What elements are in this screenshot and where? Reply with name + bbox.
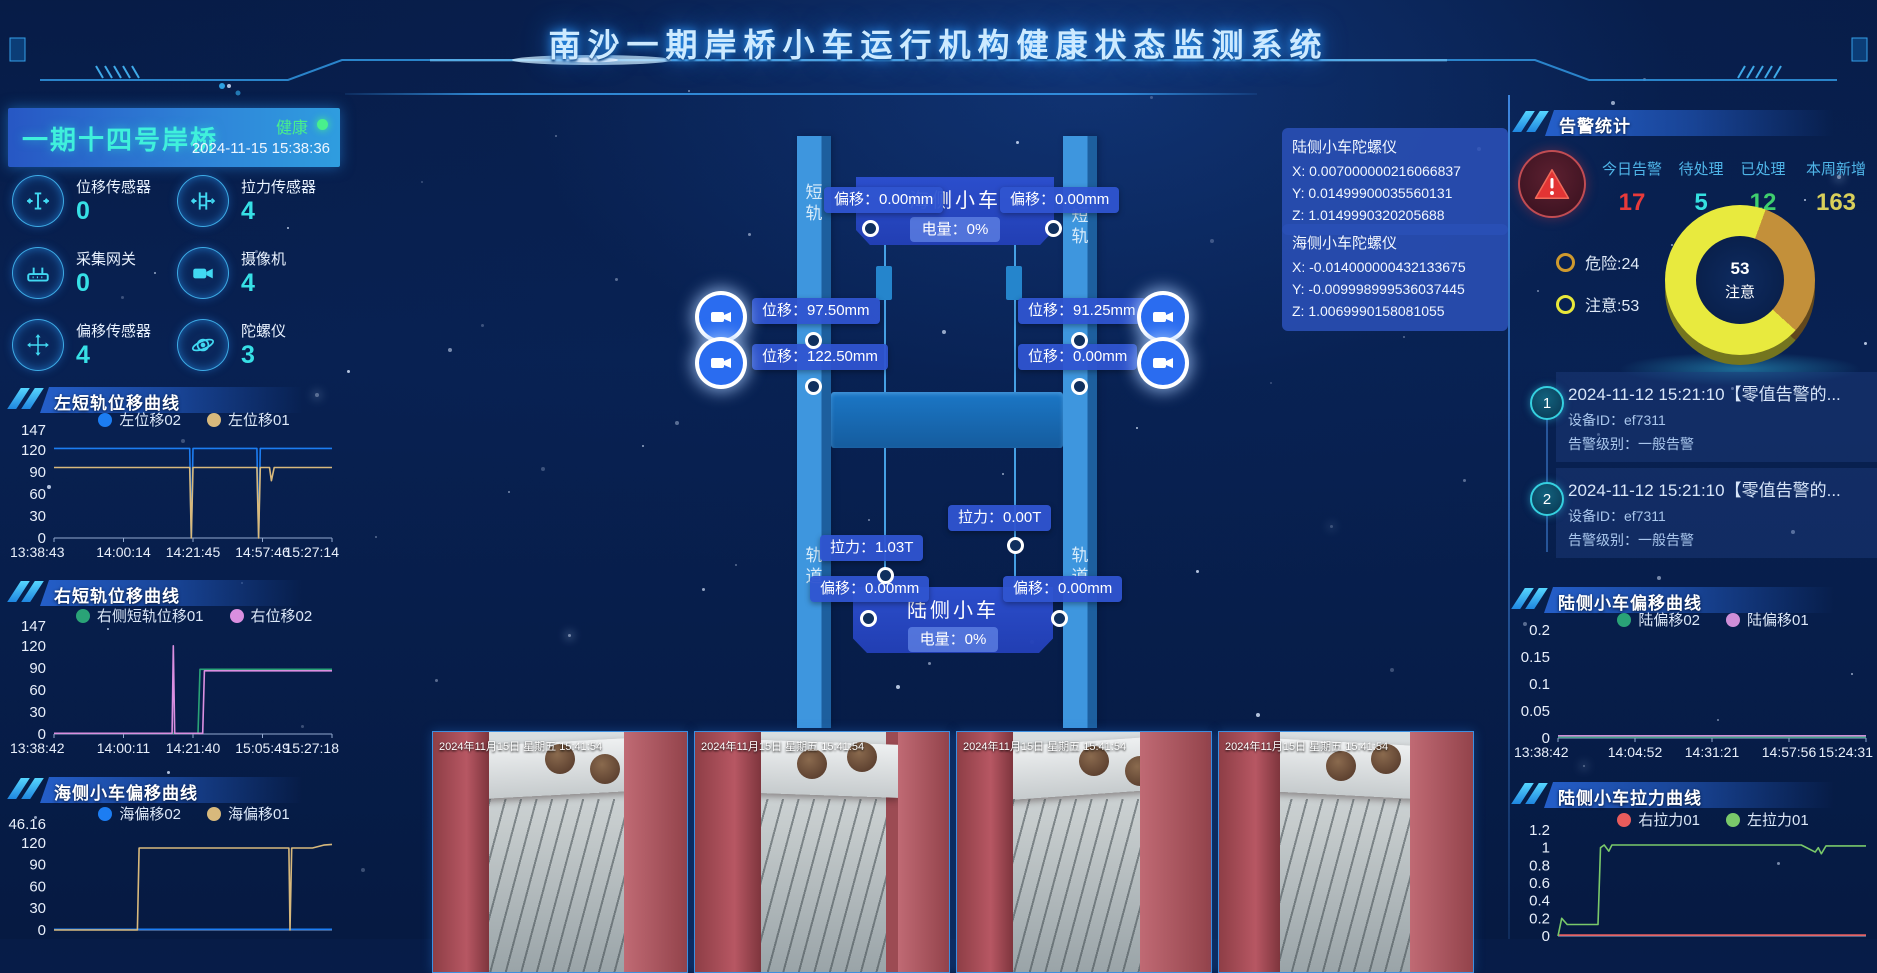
sensor-value: 4 [76,341,151,370]
legend-item[interactable]: 右侧短轨位移01 [76,605,204,626]
svg-text:13:38:42: 13:38:42 [10,740,65,756]
svg-text:0: 0 [1542,928,1550,944]
sensor-offset: 偏移传感器 4 [12,319,177,371]
chart-land-trolley-tension: 1.210.80.60.40.20右拉力01左拉力01 [1512,812,1874,944]
sea-trolley-gyro-panel: 海侧小车陀螺仪 X: -0.014000000432133675 Y: -0.0… [1282,224,1508,331]
section-title: 告警统计 [1559,112,1631,137]
svg-text:0.2: 0.2 [1529,622,1550,639]
alarm-list-item[interactable]: 2024-11-12 15:21:10【零值告警的... 设备ID：ef7311… [1556,468,1877,558]
svg-text:30: 30 [29,508,46,525]
svg-text:14:00:14: 14:00:14 [96,544,151,560]
sensor-tension: 拉力传感器 4 [177,175,342,227]
svg-text:120: 120 [21,638,46,655]
svg-text:14:00:11: 14:00:11 [97,740,151,756]
svg-text:0.6: 0.6 [1529,875,1550,892]
displacement-left-upper-tag: 位移：97.50mm [752,298,880,324]
sensor-label: 偏移传感器 [76,320,151,341]
chart-legend: 右拉力01左拉力01 [1552,809,1874,830]
tension-right-tag: 拉力：0.00T [948,505,1051,531]
danger-legend-dot [1556,253,1575,272]
svg-text:90: 90 [29,857,46,874]
section-alarm-stats: 告警统计 [1513,108,1873,138]
gyro-title: 陆侧小车陀螺仪 [1292,136,1498,159]
legend-item[interactable]: 左位移02 [98,409,181,430]
status-dot [317,119,328,130]
land-offset-left-marker [860,610,877,627]
chart-legend: 左位移02左位移01 [48,409,340,430]
alarm-level: 告警级别：一般告警 [1568,434,1694,454]
sensor-displacement: 位移传感器 0 [12,175,177,227]
alarm-timeline [1546,400,1548,552]
feed-timestamp: 2024年11月15日 星期五 15:41:54 [963,738,1126,754]
svg-text:13:38:42: 13:38:42 [1514,744,1569,760]
svg-text:60: 60 [29,878,46,895]
chart-legend: 右侧短轨位移01右位移02 [48,605,340,626]
tension-right-marker [1007,537,1024,554]
section-sea-trolley-offset: 海侧小车偏移曲线 [8,775,338,805]
crane-name: 一期十四号岸桥 [22,120,218,157]
gyro-z: Z: 1.0069990158081055 [1292,301,1498,323]
legend-item[interactable]: 右位移02 [230,605,313,626]
svg-text:14:57:56: 14:57:56 [1762,744,1817,760]
alarm-list-item[interactable]: 2024-11-12 15:21:10【零值告警的... 设备ID：ef7311… [1556,372,1877,462]
svg-text:0.15: 0.15 [1521,649,1550,666]
svg-text:30: 30 [29,900,46,917]
sensor-value: 3 [241,341,286,370]
sensor-camera: 摄像机 4 [177,247,342,299]
svg-text:0.2: 0.2 [1529,910,1550,927]
right-damper [1006,266,1022,300]
svg-text:0.8: 0.8 [1529,857,1550,874]
pie-center-value: 53 [1731,259,1750,279]
gyro-title: 海侧小车陀螺仪 [1292,232,1498,255]
sensor-gateway: 采集网关 0 [12,247,177,299]
alarm-title: 2024-11-12 15:21:10【零值告警的... [1568,380,1841,405]
svg-text:0: 0 [38,922,46,938]
sensor-value: 0 [76,269,136,298]
crane-info-card: 一期十四号岸桥 健康 2024-11-15 15:38:36 [8,108,340,167]
sensor-label: 位移传感器 [76,176,151,197]
svg-text:120: 120 [21,442,46,459]
svg-text:15:24:31: 15:24:31 [1819,744,1874,760]
land-trolley-gyro-panel: 陆侧小车陀螺仪 X: 0.007000000216066837 Y: 0.014… [1282,128,1508,235]
sea-offset-right-marker [1045,220,1062,237]
svg-text:30: 30 [29,704,46,721]
alarm-number-2: 2 [1530,482,1564,516]
legend-item[interactable]: 右拉力01 [1617,809,1700,830]
svg-text:147: 147 [21,422,46,439]
pie-legend-attention[interactable]: 注意:53 [1556,292,1639,316]
displacement-marker [1071,378,1088,395]
svg-text:15:27:18: 15:27:18 [285,740,340,756]
displacement-left-lower-tag: 位移：122.50mm [752,344,888,370]
feed-timestamp: 2024年11月15日 星期五 15:41:54 [701,738,864,754]
chart-right-short-rail-displacement: 147120906030013:38:4214:00:1114:21:4015:… [8,608,340,758]
svg-text:60: 60 [29,682,46,699]
sensor-summary-grid: 位移传感器 0 拉力传感器 4 采集网关 0 摄像机 4 [12,175,342,371]
svg-text:0.4: 0.4 [1529,893,1550,910]
svg-text:146.16: 146.16 [8,816,46,833]
tension-left-marker [877,567,894,584]
camera-feed-2[interactable]: 2024年11月15日 星期五 15:41:54 [694,731,950,973]
gyro-y: Y: -0.009998999536037445 [1292,279,1498,301]
svg-text:14:04:52: 14:04:52 [1608,744,1663,760]
sensor-label: 拉力传感器 [241,176,316,197]
sea-offset-right-tag: 偏移：0.00mm [1000,187,1119,213]
svg-text:1.2: 1.2 [1529,822,1550,839]
svg-text:13:38:43: 13:38:43 [10,544,65,560]
svg-text:14:21:40: 14:21:40 [166,740,221,756]
legend-item[interactable]: 陆偏移02 [1617,609,1700,630]
camera-icon[interactable] [1141,295,1185,339]
camera-feed-4[interactable]: 2024年11月15日 星期五 15:41:54 [1218,731,1474,973]
gyro-y: Y: 0.01499900035560131 [1292,183,1498,205]
alarm-device: 设备ID：ef7311 [1568,410,1666,430]
section-right-short-rail: 右短轨位移曲线 [8,578,338,608]
land-offset-left-tag: 偏移：0.00mm [810,576,929,602]
svg-text:1: 1 [1542,840,1550,857]
chart-left-short-rail-displacement: 147120906030013:38:4314:00:1414:21:4514:… [8,412,340,562]
camera-icon[interactable] [1141,341,1185,385]
displacement-marker [805,332,822,349]
left-damper [876,266,892,300]
pie-center-label: 注意 [1725,281,1755,302]
camera-icon[interactable] [699,295,743,339]
legend-item[interactable]: 左位移01 [207,409,290,430]
sensor-label: 摄像机 [241,248,286,269]
pie-center: 53 注意 [1696,236,1784,324]
displacement-marker [805,378,822,395]
section-title: 陆侧小车拉力曲线 [1558,784,1702,809]
alarm-device: 设备ID：ef7311 [1568,506,1666,526]
alarm-donut-chart[interactable]: 53 注意 [1650,200,1830,376]
sensor-value: 4 [241,197,316,226]
section-title: 右短轨位移曲线 [54,582,180,607]
gyro-x: X: 0.007000000216066837 [1292,161,1498,183]
sensor-label: 陀螺仪 [241,320,286,341]
legend-item[interactable]: 海偏移01 [207,803,290,824]
camera-count-icon [177,247,229,299]
svg-text:15:27:14: 15:27:14 [285,544,340,560]
svg-text:90: 90 [29,660,46,677]
svg-text:120: 120 [21,835,46,852]
legend-item[interactable]: 海偏移02 [98,803,181,824]
left-short-rail-label: 短 轨 [804,182,824,225]
svg-text:14:31:21: 14:31:21 [1685,744,1740,760]
sea-offset-left-marker [862,220,879,237]
gyro-x: X: -0.014000000432133675 [1292,257,1498,279]
svg-text:0.1: 0.1 [1529,676,1550,693]
tension-left-tag: 拉力：1.03T [820,535,923,561]
svg-text:147: 147 [21,618,46,635]
svg-text:15:05:49: 15:05:49 [235,740,290,756]
offset-sensor-icon [12,319,64,371]
camera-feed-3[interactable]: 2024年11月15日 星期五 15:41:54 [956,731,1212,973]
sea-offset-left-tag: 偏移：0.00mm [824,187,943,213]
land-offset-right-tag: 偏移：0.00mm [1003,576,1122,602]
tension-sensor-icon [177,175,229,227]
camera-feed-1[interactable]: 2024年11月15日 星期五 15:41:54 [432,731,688,973]
chart-legend: 海偏移02海偏移01 [48,803,340,824]
sea-trolley-battery: 电量：0% [910,217,1001,242]
sensor-value: 4 [241,269,286,298]
feed-timestamp: 2024年11月15日 星期五 15:41:54 [1225,738,1388,754]
alarm-warning-icon [1518,150,1586,218]
crane-timestamp: 2024-11-15 15:38:36 [192,140,330,157]
sensor-label: 采集网关 [76,248,136,269]
displacement-sensor-icon [12,175,64,227]
cross-beam [831,392,1063,448]
alarm-number-1: 1 [1530,386,1564,420]
attention-legend-dot [1556,295,1575,314]
crane-status: 健康 [276,114,308,138]
page-title: 南沙一期岸桥小车运行机构健康状态监测系统 [548,20,1328,66]
camera-icon[interactable] [699,341,743,385]
left-rail [797,136,831,728]
land-offset-right-marker [1051,610,1068,627]
chart-sea-trolley-offset: 146.161209060300海偏移02海偏移01 [8,806,340,938]
section-land-trolley-tension: 陆侧小车拉力曲线 [1512,780,1874,810]
displacement-right-upper-tag: 位移：91.25mm [1018,298,1146,324]
alarm-level: 告警级别：一般告警 [1568,530,1694,550]
legend-item[interactable]: 左拉力01 [1726,809,1809,830]
land-trolley-battery: 电量：0% [908,627,999,652]
sensor-gyroscope: 陀螺仪 3 [177,319,342,371]
gateway-icon [12,247,64,299]
center-panel-top-border [345,93,1257,95]
svg-text:14:57:46: 14:57:46 [235,544,290,560]
legend-item[interactable]: 陆偏移01 [1726,609,1809,630]
svg-text:0.05: 0.05 [1521,703,1550,720]
chart-land-trolley-offset: 0.20.150.10.05013:38:4214:04:5214:31:211… [1512,612,1874,762]
svg-text:14:21:45: 14:21:45 [166,544,221,560]
pie-legend-danger[interactable]: 危险:24 [1556,250,1639,274]
right-panel-divider [1508,95,1510,939]
chart-legend: 陆偏移02陆偏移01 [1552,609,1874,630]
section-title: 海侧小车偏移曲线 [54,779,198,804]
alarm-title: 2024-11-12 15:21:10【零值告警的... [1568,476,1841,501]
feed-timestamp: 2024年11月15日 星期五 15:41:54 [439,738,602,754]
svg-text:60: 60 [29,486,46,503]
svg-text:90: 90 [29,464,46,481]
sensor-value: 0 [76,197,151,226]
gyroscope-icon [177,319,229,371]
displacement-marker [1071,332,1088,349]
